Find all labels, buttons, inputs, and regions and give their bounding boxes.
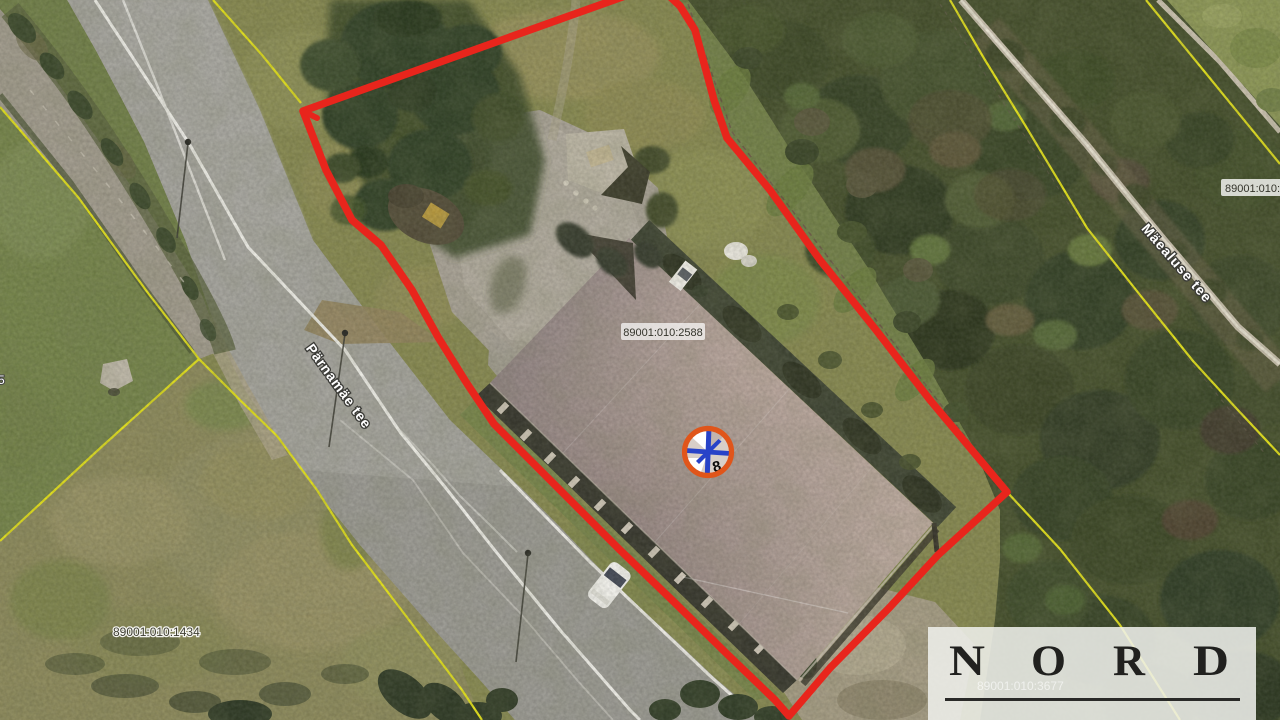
svg-text:89001:010:2588: 89001:010:2588 bbox=[623, 327, 703, 339]
svg-text:89001:010:0: 89001:010:0 bbox=[1225, 183, 1280, 195]
svg-text:N: N bbox=[949, 638, 985, 685]
svg-text:O: O bbox=[1031, 638, 1066, 685]
svg-text:D: D bbox=[1193, 638, 1229, 685]
svg-text:5: 5 bbox=[0, 373, 5, 387]
svg-text:R: R bbox=[1113, 638, 1146, 685]
svg-text:89001:010:1434: 89001:010:1434 bbox=[113, 625, 200, 639]
